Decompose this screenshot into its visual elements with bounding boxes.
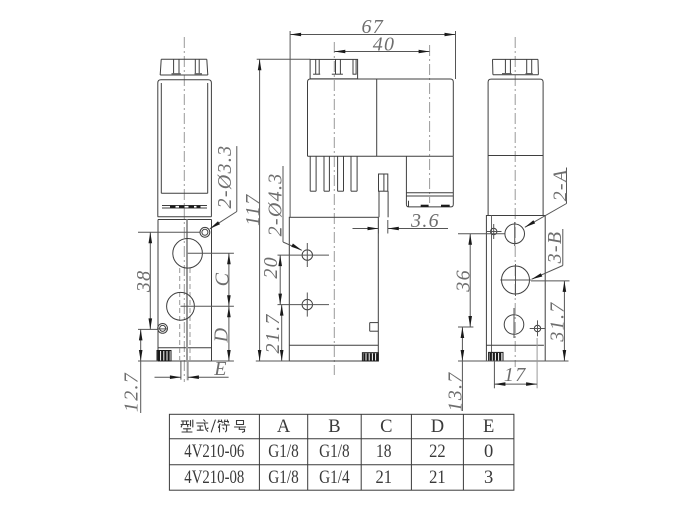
svg-text:A: A (277, 417, 291, 437)
svg-text:21.7: 21.7 (262, 313, 284, 353)
svg-text:G1/8: G1/8 (319, 442, 350, 462)
svg-text:4V210-08: 4V210-08 (184, 468, 244, 488)
svg-text:12.7: 12.7 (121, 372, 143, 412)
svg-text:2-Ø4.3: 2-Ø4.3 (264, 172, 286, 236)
svg-text:3-B: 3-B (544, 231, 566, 265)
svg-text:G1/8: G1/8 (268, 468, 299, 488)
svg-text:C: C (380, 417, 392, 437)
svg-text:3: 3 (484, 468, 493, 488)
svg-text:36: 36 (453, 269, 475, 293)
svg-text:4V210-06: 4V210-06 (184, 442, 244, 462)
svg-text:22: 22 (429, 442, 446, 462)
svg-text:D: D (431, 417, 444, 437)
svg-text:31.7: 31.7 (546, 301, 568, 342)
svg-text:17: 17 (504, 364, 527, 386)
svg-text:21: 21 (376, 468, 393, 488)
svg-text:20: 20 (260, 256, 282, 279)
svg-text:2-Ø3.3: 2-Ø3.3 (214, 145, 236, 209)
svg-text:G1/4: G1/4 (319, 468, 350, 488)
svg-text:0: 0 (484, 442, 493, 462)
svg-text:21: 21 (429, 468, 446, 488)
svg-text:38: 38 (133, 269, 155, 293)
svg-text:117: 117 (242, 193, 264, 225)
svg-text:E: E (483, 417, 494, 437)
svg-text:40: 40 (373, 33, 396, 55)
svg-text:C: C (211, 272, 233, 287)
svg-text:13.7: 13.7 (444, 371, 466, 411)
svg-text:3.6: 3.6 (410, 210, 440, 232)
svg-text:E: E (213, 358, 228, 380)
svg-text:18: 18 (376, 442, 392, 462)
svg-text:B: B (328, 417, 340, 437)
svg-text:2-A: 2-A (549, 169, 571, 202)
svg-text:D: D (211, 327, 233, 344)
svg-text:G1/8: G1/8 (268, 442, 299, 462)
